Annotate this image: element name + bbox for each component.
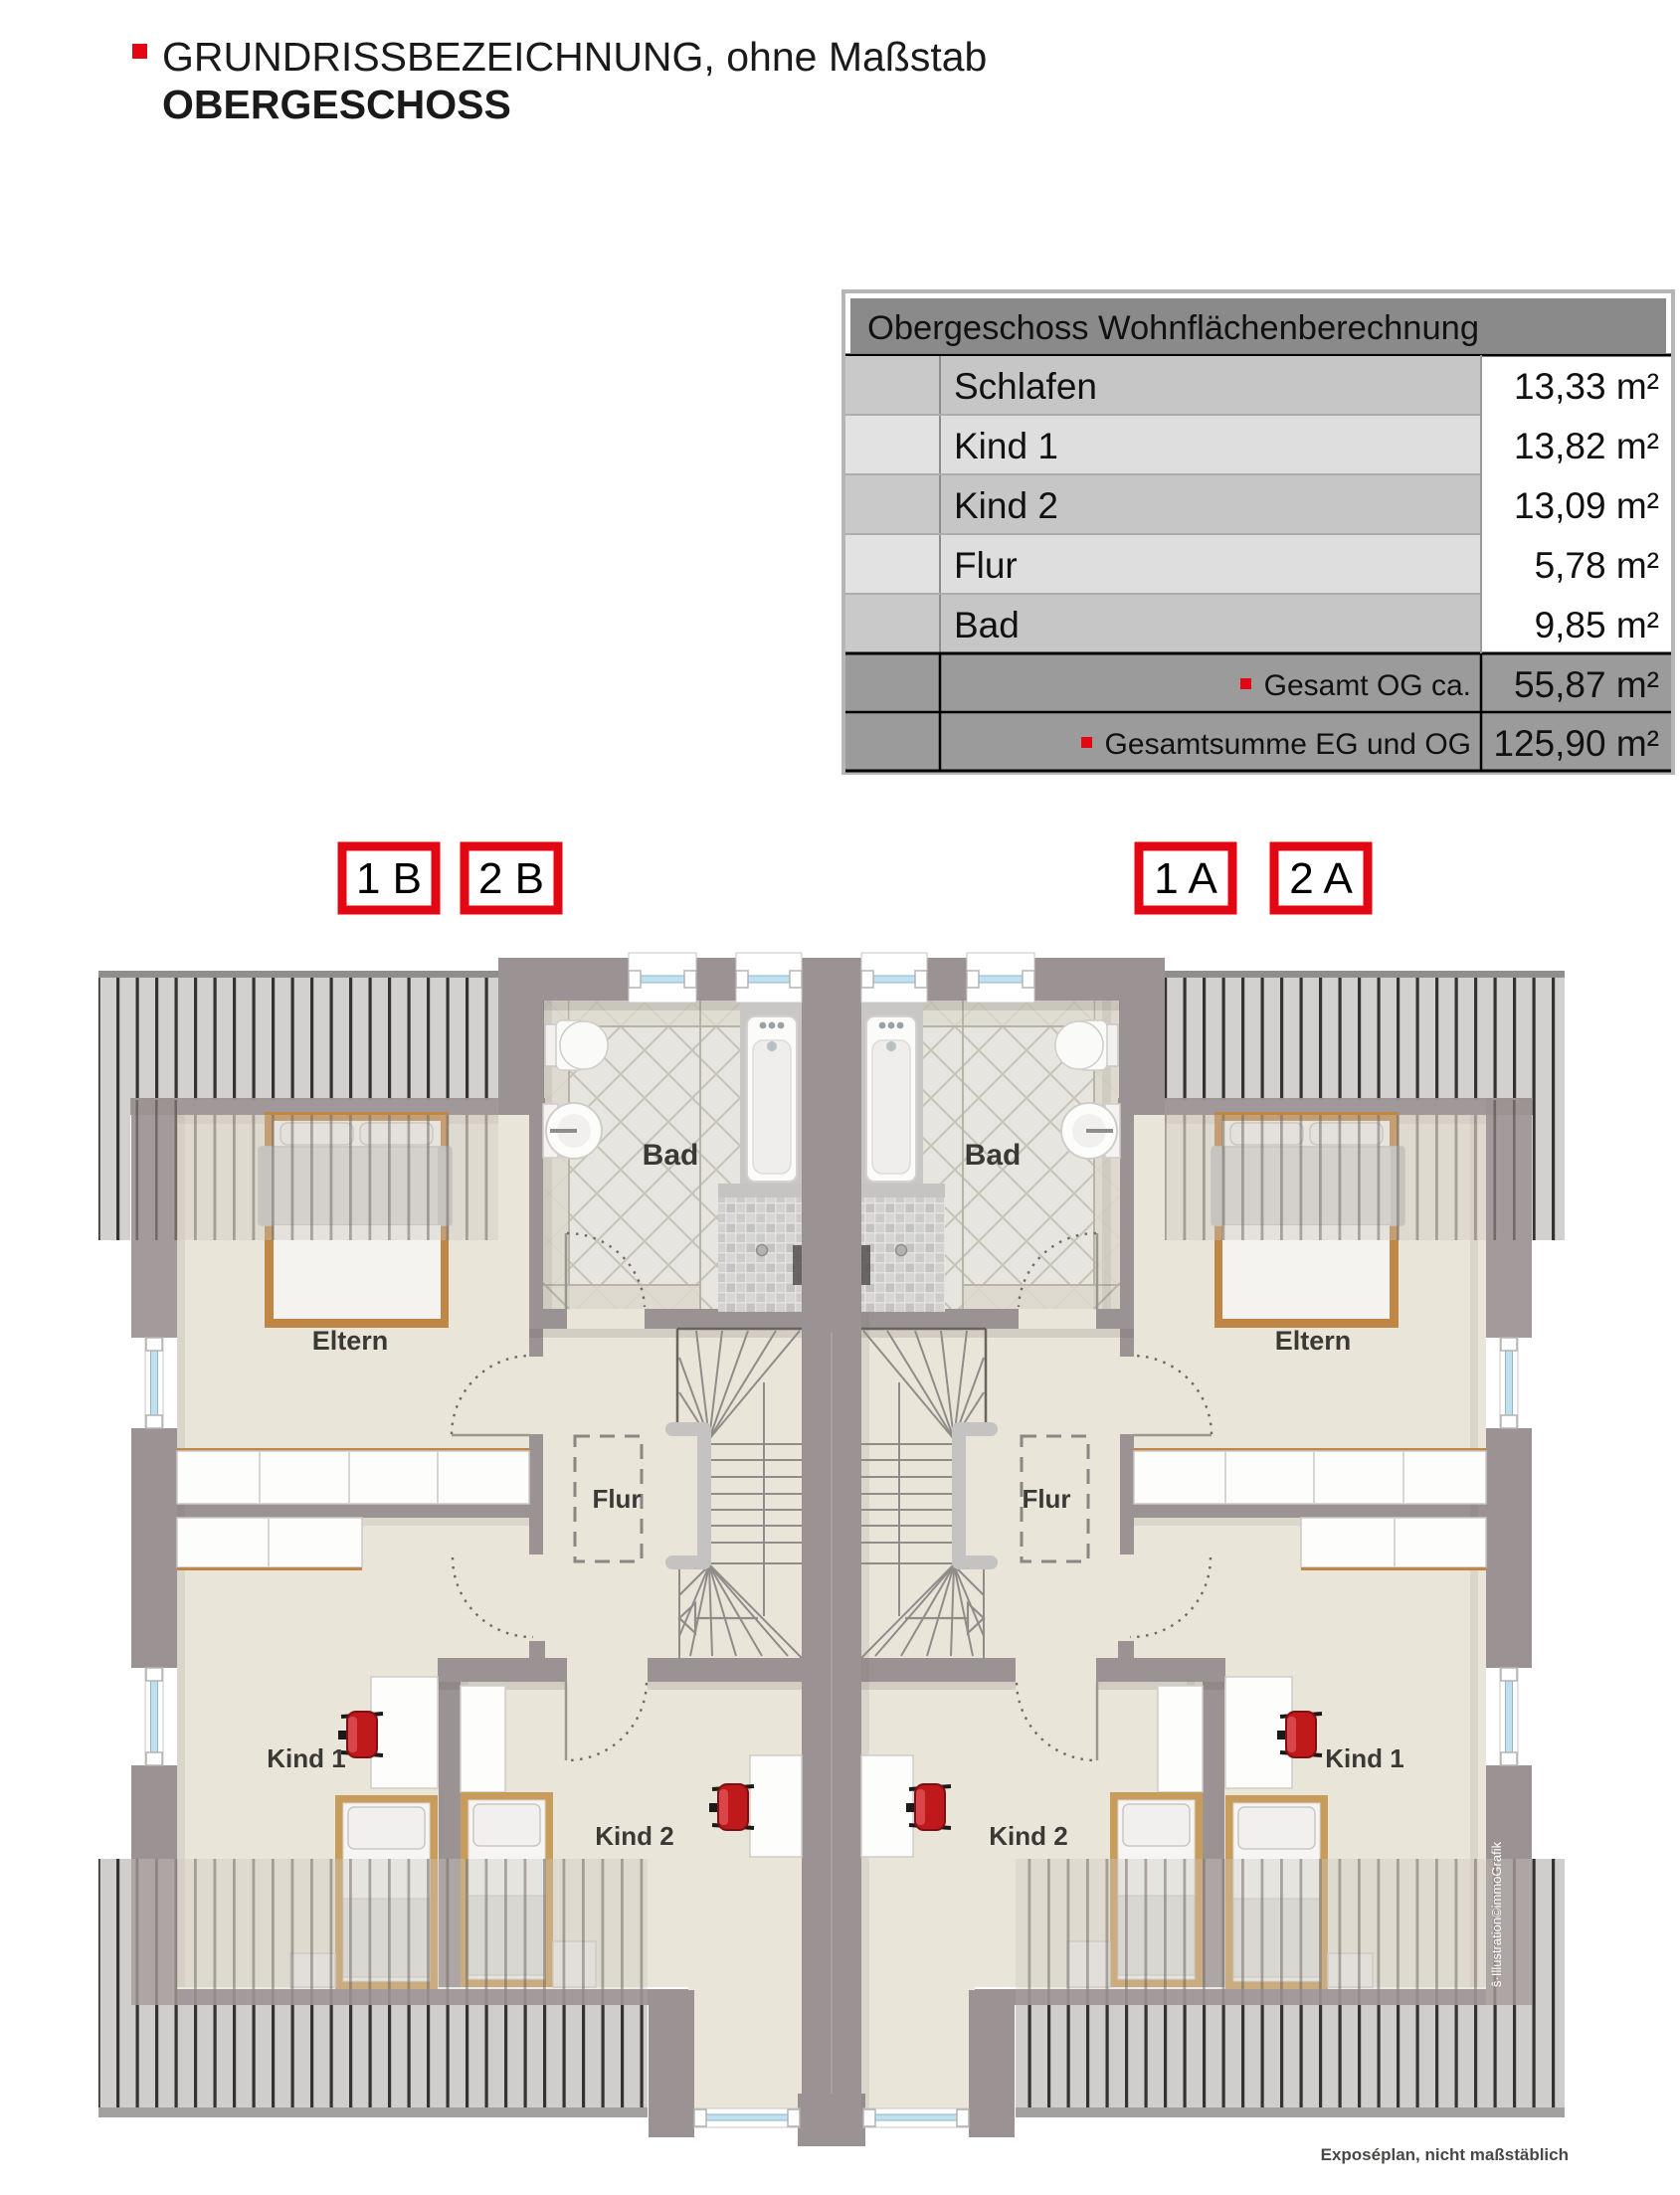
svg-text:Flur: Flur [592,1484,641,1514]
svg-text:Bad: Bad [954,605,1020,645]
svg-text:Schlafen: Schlafen [954,366,1097,407]
svg-text:Exposéplan, nicht maßstäblich: Exposéplan, nicht maßstäblich [1321,2145,1569,2164]
svg-text:OBERGESCHOSS: OBERGESCHOSS [162,82,511,127]
svg-text:5,78 m²: 5,78 m² [1535,545,1659,586]
svg-text:13,82 m²: 13,82 m² [1514,426,1659,466]
svg-text:1 A: 1 A [1154,854,1217,903]
svg-text:GRUNDRISSBEZEICHNUNG, ohne Maß: GRUNDRISSBEZEICHNUNG, ohne Maßstab [162,34,987,80]
svg-text:Flur: Flur [1022,1484,1070,1514]
svg-text:Kind 1: Kind 1 [1325,1743,1403,1773]
svg-text:Gesamt OG ca.: Gesamt OG ca. [1264,669,1471,702]
svg-text:13,33 m²: 13,33 m² [1514,366,1659,407]
svg-text:13,09 m²: 13,09 m² [1514,485,1659,526]
svg-text:Kind 2: Kind 2 [595,1821,673,1851]
svg-text:125,90 m²: 125,90 m² [1493,723,1659,764]
svg-text:Kind 2: Kind 2 [989,1821,1067,1851]
svg-text:Kind 1: Kind 1 [954,426,1058,466]
svg-text:Gesamtsumme EG und OG: Gesamtsumme EG und OG [1105,728,1471,761]
svg-text:Flur: Flur [954,545,1018,586]
svg-text:Bad: Bad [643,1139,699,1172]
svg-text:Eltern: Eltern [312,1326,389,1356]
svg-text:ŝ·Illustration©immoGrafik: ŝ·Illustration©immoGrafik [1489,1841,1504,1987]
svg-text:Kind 2: Kind 2 [954,485,1058,526]
svg-text:55,87 m²: 55,87 m² [1514,664,1659,705]
svg-text:Kind 1: Kind 1 [267,1743,345,1773]
svg-text:9,85 m²: 9,85 m² [1535,605,1659,645]
svg-text:2 A: 2 A [1289,854,1353,903]
svg-text:Bad: Bad [965,1139,1022,1172]
svg-text:Obergeschoss Wohnflächenberech: Obergeschoss Wohnflächenberechnung [867,309,1479,347]
svg-text:1 B: 1 B [356,854,422,903]
svg-text:2 B: 2 B [478,854,544,903]
svg-text:Eltern: Eltern [1275,1326,1352,1356]
